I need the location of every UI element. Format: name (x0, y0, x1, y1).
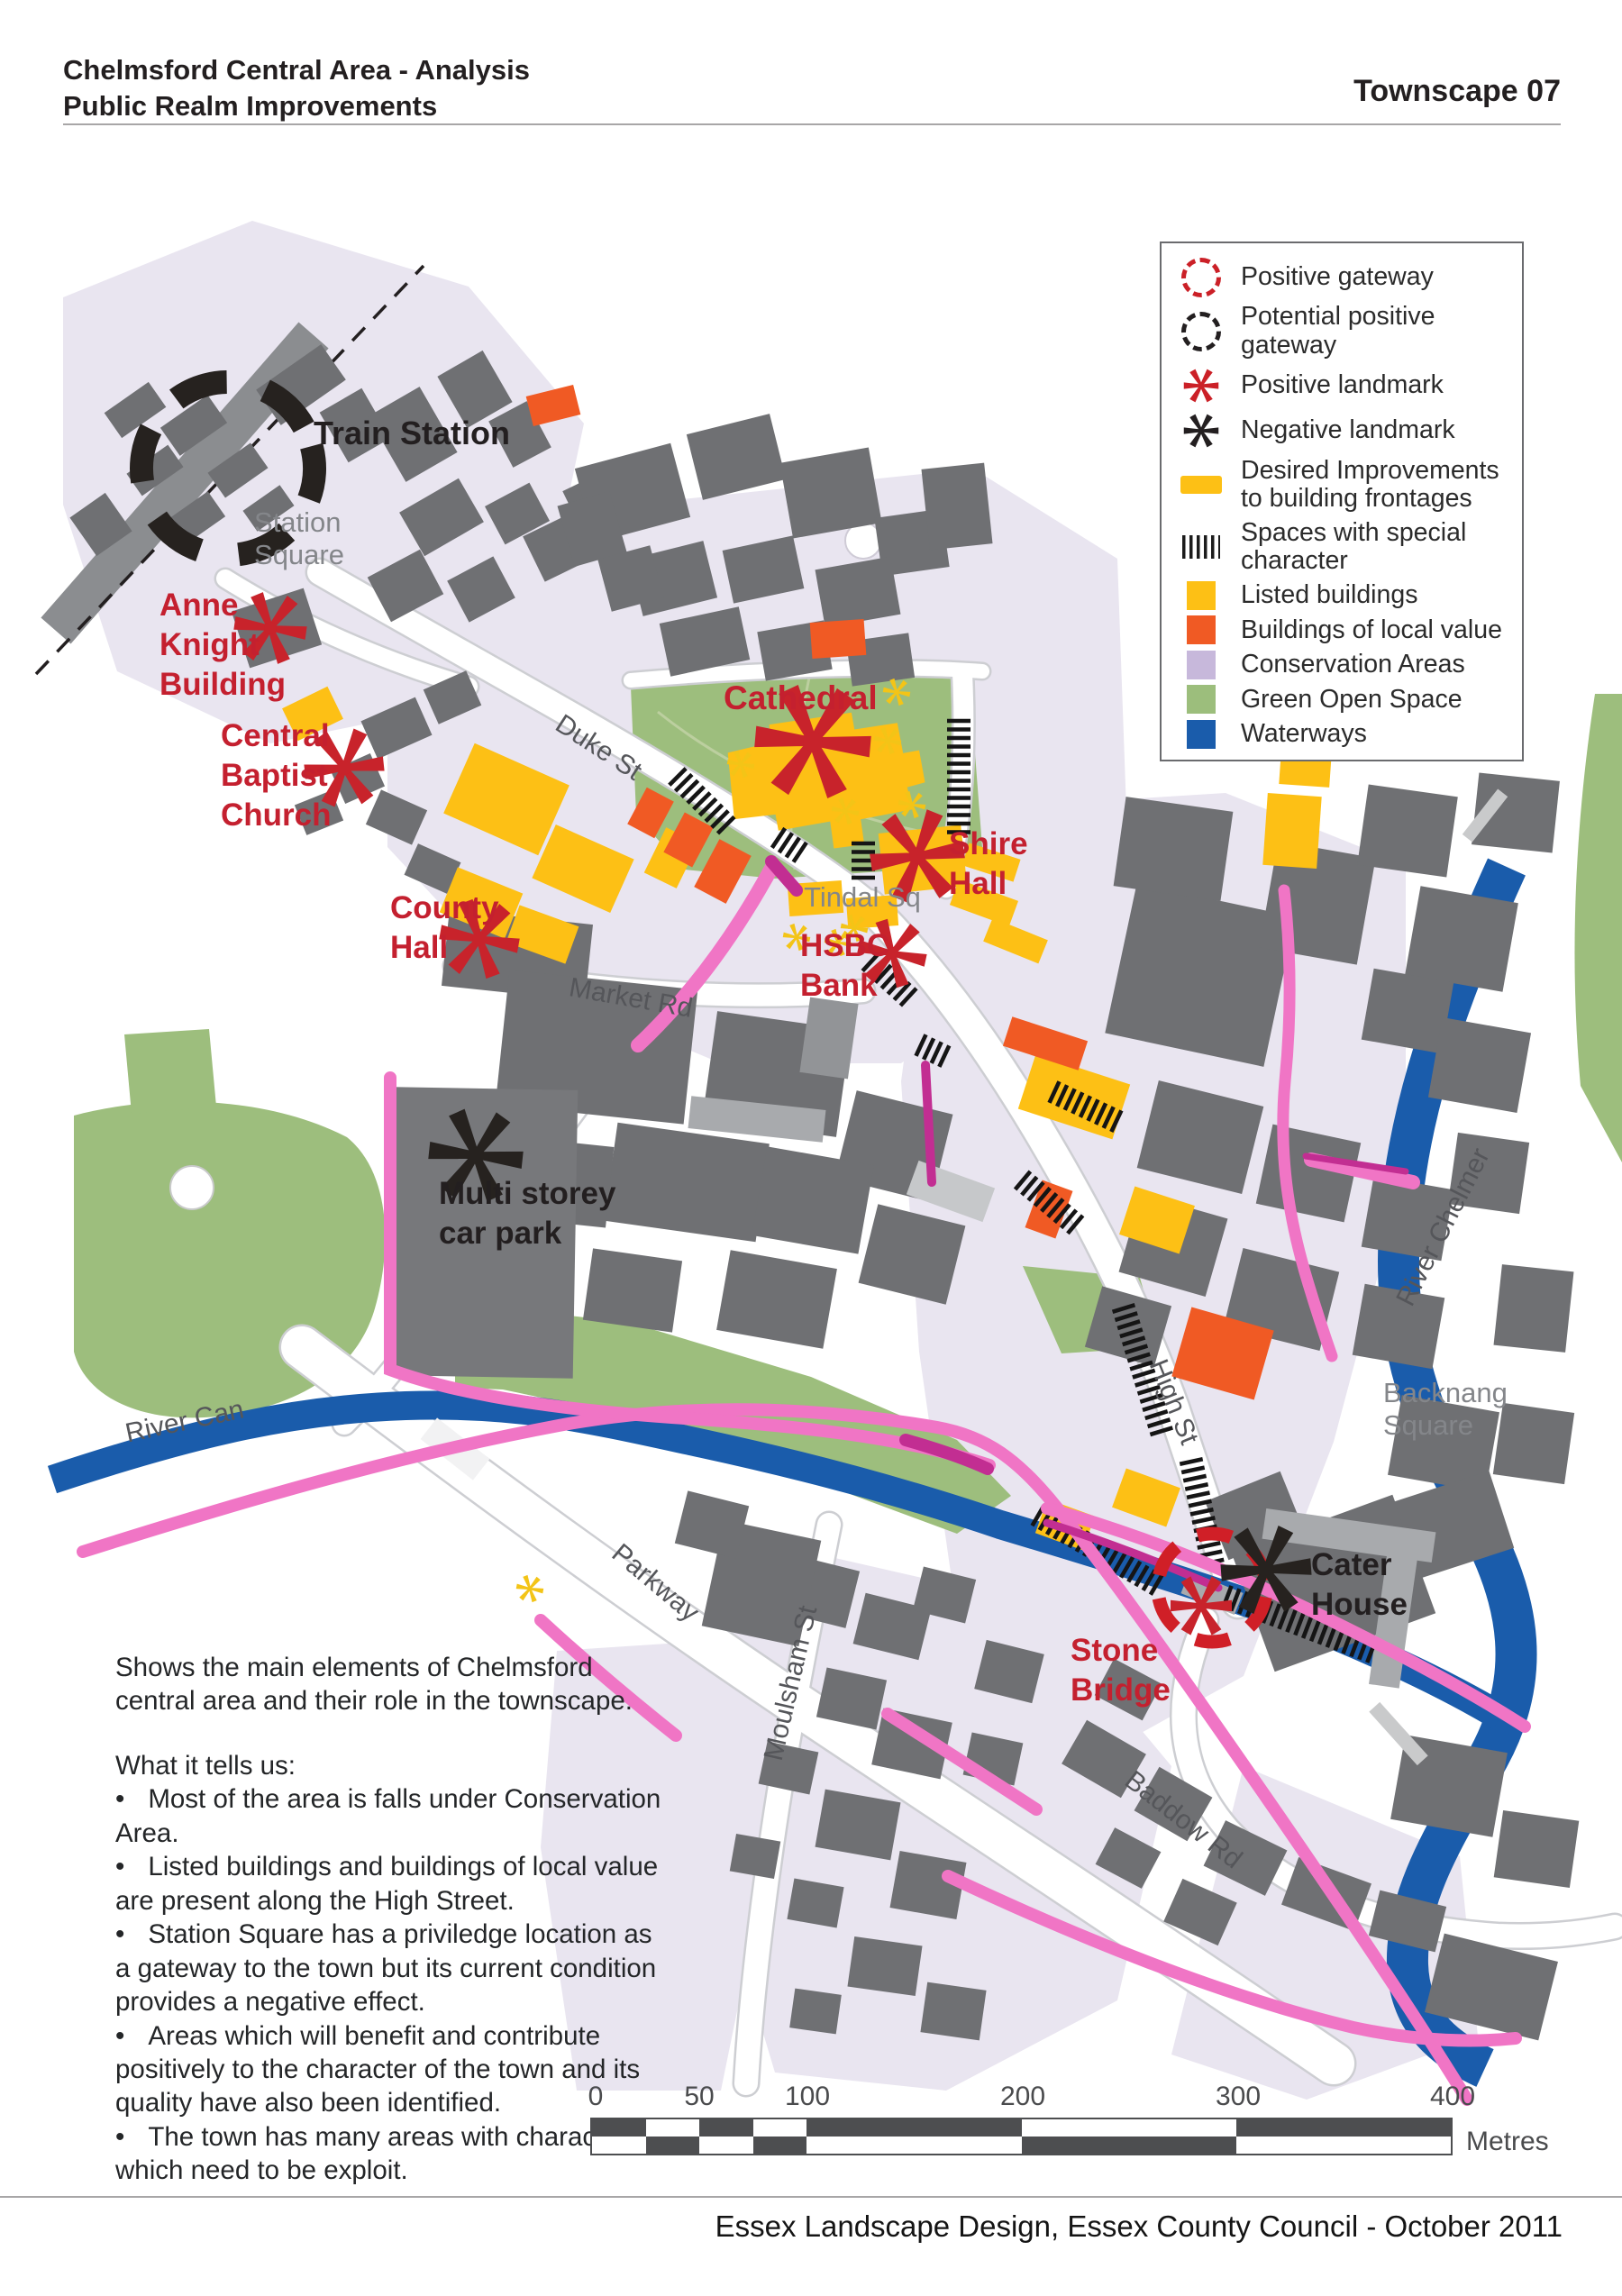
positive-landmark-icon (1178, 366, 1225, 405)
scale-bar-checker (590, 2118, 1453, 2155)
label-county-hall: County Hall (390, 888, 499, 968)
label-shire-hall: Shire Hall (949, 825, 1028, 904)
notes-bullet: Station Square has a priviledge location… (115, 1918, 670, 2018)
notes-intro: Shows the main elements of Chelmsford ce… (115, 1651, 670, 1718)
label-cater-house: Cater House (1311, 1545, 1408, 1625)
label-hsbc-bank: HSBC Bank (800, 926, 889, 1006)
notes-bullet: The town has many areas with character w… (115, 2120, 670, 2188)
listed-buildings-swatch (1187, 581, 1216, 610)
special-character-icon (1182, 535, 1220, 559)
label-train-station: Train Station (314, 413, 510, 453)
label-multi-storey: Multi storey car park (439, 1174, 615, 1253)
legend-item-special-character: Spaces with special character (1178, 519, 1506, 576)
page-title: Chelmsford Central Area - Analysis Publi… (63, 52, 530, 124)
negative-landmark-icon (1178, 411, 1225, 451)
label-backnang-square: Backnang Square (1383, 1377, 1508, 1442)
label-station-square: Station Square (254, 506, 344, 571)
scale-tick: 100 (785, 2082, 830, 2112)
legend-item-desired-improvements: Desired Improvements to building frontag… (1178, 457, 1506, 514)
label-stone-bridge: Stone Bridge (1071, 1631, 1171, 1710)
label-cathedral: Cathedral (724, 678, 878, 720)
frontage-improvement-icon (1180, 476, 1222, 494)
scale-tick: 50 (684, 2082, 714, 2112)
legend-item-listed-buildings: Listed buildings (1178, 581, 1506, 610)
header-divider (63, 123, 1561, 125)
positive-gateway-icon (1181, 258, 1221, 297)
footer-divider (0, 2196, 1622, 2198)
potential-gateway-icon (1181, 312, 1221, 351)
legend-item-negative-landmark: Negative landmark (1178, 411, 1506, 451)
scale-unit: Metres (1466, 2127, 1549, 2157)
scale-tick: 0 (588, 2082, 604, 2112)
page-title-line1: Chelmsford Central Area - Analysis (63, 52, 530, 88)
green-space-swatch (1187, 685, 1216, 714)
notes-bullet: Most of the area is falls under Conserva… (115, 1782, 670, 1850)
page-title-line2: Public Realm Improvements (63, 88, 530, 124)
legend-item-positive-gateway: Positive gateway (1178, 258, 1506, 297)
legend-item-positive-landmark: Positive landmark (1178, 366, 1506, 405)
scale-tick: 400 (1430, 2082, 1475, 2112)
scale-tick: 300 (1216, 2082, 1261, 2112)
waterways-swatch (1187, 720, 1216, 749)
notes-bullet: Listed buildings and buildings of local … (115, 1850, 670, 1918)
scale-tick: 200 (1000, 2082, 1045, 2112)
label-central-baptist: Central Baptist Church (221, 716, 332, 835)
notes-bullet: Areas which will benefit and contribute … (115, 2019, 670, 2120)
legend-item-conservation: Conservation Areas (1178, 651, 1506, 679)
page-number: Townscape 07 (1353, 74, 1561, 109)
local-value-swatch (1187, 615, 1216, 644)
map-legend: Positive gateway Potential positive gate… (1160, 241, 1524, 761)
label-anne-knight: Anne Knight Building (159, 586, 286, 705)
scale-bar: 0 50 100 200 300 400 Metres (590, 2082, 1563, 2163)
notes-heading: What it tells us: (115, 1749, 670, 1782)
conservation-swatch (1187, 651, 1216, 679)
legend-item-potential-gateway: Potential positive gateway (1178, 303, 1506, 360)
legend-item-waterways: Waterways (1178, 720, 1506, 749)
label-tindal-sq: Tindal Sq (804, 881, 921, 914)
notes-block: Shows the main elements of Chelmsford ce… (115, 1651, 670, 2188)
footer-credit: Essex Landscape Design, Essex County Cou… (715, 2209, 1563, 2244)
legend-item-local-value: Buildings of local value (1178, 615, 1506, 644)
legend-item-green-space: Green Open Space (1178, 685, 1506, 714)
